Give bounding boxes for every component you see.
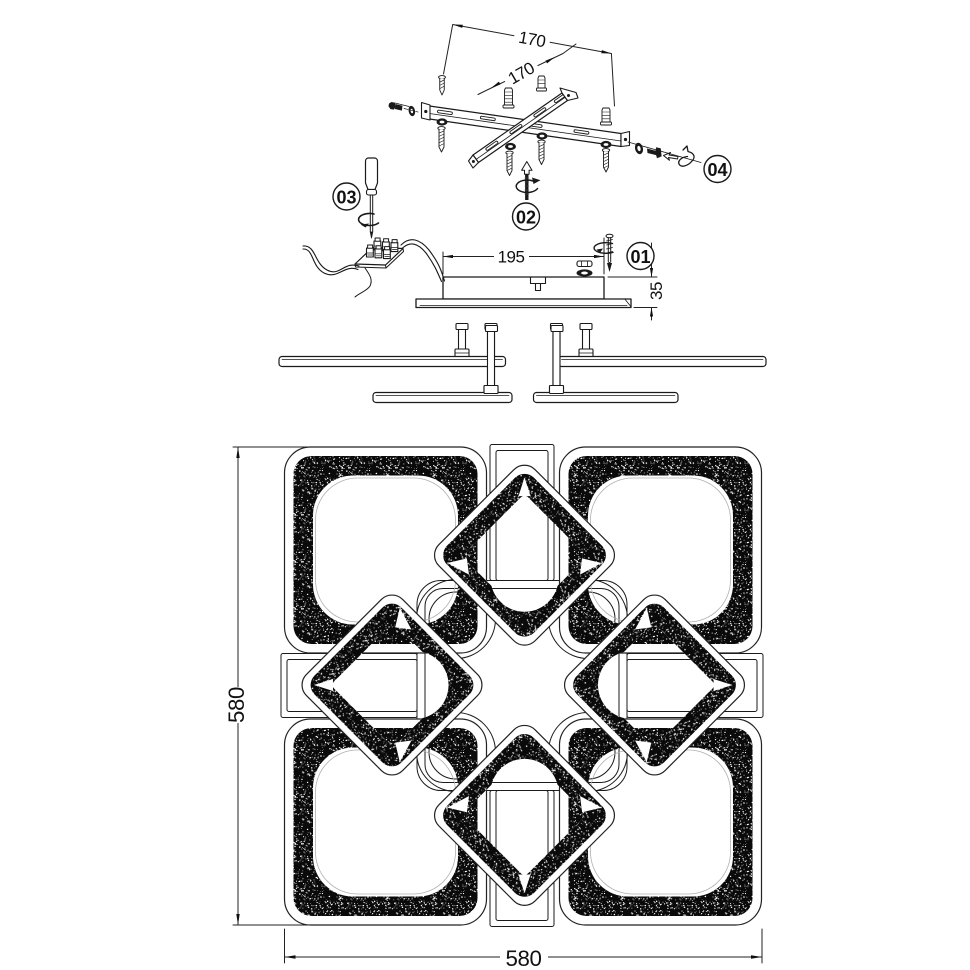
svg-text:04: 04 [707,160,727,180]
svg-text:580: 580 [505,946,541,970]
svg-text:01: 01 [630,247,650,267]
svg-text:35: 35 [647,282,666,300]
svg-text:580: 580 [224,687,249,723]
svg-text:02: 02 [516,208,536,228]
svg-text:03: 03 [336,188,356,208]
svg-text:195: 195 [498,248,525,267]
